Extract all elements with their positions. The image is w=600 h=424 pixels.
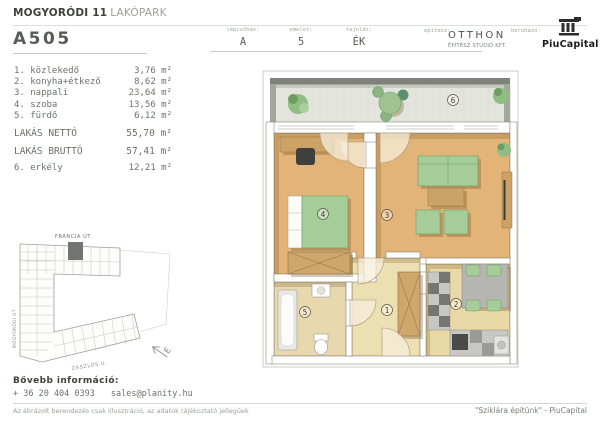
net-area-label: LAKÁS NETTÓ [14, 128, 77, 139]
plant-icon [497, 143, 511, 157]
unit-id-underline [13, 53, 147, 54]
project-title: MOGYORÓDI 11LAKÓPARK [13, 7, 167, 19]
floor-plan: 6 4 3 1 2 5 [258, 68, 522, 370]
net-area-row: LAKÁS NETTÓ55,70 m² [14, 128, 172, 139]
hallway-furniture [398, 272, 420, 336]
toilet [314, 334, 328, 355]
room-row: 4. szoba13,56 m² [14, 100, 172, 111]
meta-orientation-value: ÉK [330, 36, 388, 48]
slogan-text: "Sziklára építünk" - PiuCapital [475, 406, 587, 415]
coffee-table [428, 188, 464, 206]
room-area: 23,64 m² [129, 88, 172, 99]
room-area: 3,76 m² [134, 66, 172, 77]
architect-name: OTTHON [448, 30, 506, 41]
plant-icon [493, 88, 509, 104]
svg-text:2: 2 [454, 300, 459, 309]
developer-name: PiuCapital [542, 39, 599, 50]
svg-text:5: 5 [303, 308, 308, 317]
north-arrow-icon: É [150, 340, 172, 361]
balcony-label: 6. erkély [14, 163, 63, 174]
meta-orientation-label: tájolás: [330, 27, 388, 33]
room-label-4: 4 [318, 209, 329, 220]
project-name-bold: MOGYORÓDI 11 [13, 7, 107, 19]
svg-text:4: 4 [321, 210, 326, 219]
piucapital-logo-icon [557, 17, 583, 37]
gross-area-value: 57,41 m² [126, 146, 172, 157]
room-area: 13,56 m² [129, 100, 172, 111]
room-row: 3. nappali23,64 m² [14, 88, 172, 99]
room-row: 5. fürdő6,12 m² [14, 111, 172, 122]
meta-floor-value: 5 [272, 36, 330, 48]
meta-floor-label: emelet: [272, 27, 330, 33]
gross-area-row: LAKÁS BRUTTÓ57,41 m² [14, 146, 172, 157]
apartment-datasheet: MOGYORÓDI 11LAKÓPARK A505 lépcsőház: A e… [0, 0, 600, 424]
room-label-3: 3 [382, 210, 393, 221]
room-label: 2. konyha+étkező [14, 77, 101, 88]
desk-chair [296, 148, 315, 165]
architect-subtitle: ÉPÍTÉSZ STÚDIÓ KFT. [448, 43, 507, 49]
room-area: 6,12 m² [134, 111, 172, 122]
net-area-value: 55,70 m² [126, 128, 172, 139]
bed-pillows [288, 196, 302, 248]
email-address: sales@planity.hu [111, 389, 193, 399]
meta-orientation: tájolás: ÉK [330, 27, 388, 48]
disclaimer-text: Az ábrázolt berendezés csak illusztráció… [13, 407, 249, 415]
more-info-title: Bővebb információ: [13, 376, 119, 386]
highlighted-unit [68, 242, 83, 260]
stove [452, 334, 468, 350]
room-list: 1. közlekedő3,76 m² 2. konyha+étkező8,62… [14, 66, 172, 122]
svg-text:6: 6 [451, 96, 456, 105]
room-label: 4. szoba [14, 100, 57, 111]
gross-area-label: LAKÁS BRUTTÓ [14, 146, 83, 157]
room-label: 1. közlekedő [14, 66, 79, 77]
footer-divider [13, 403, 587, 404]
bed [302, 196, 348, 248]
contact-line: + 36 20 404 0393sales@planity.hu [13, 389, 193, 399]
street-bottom-label: ZÁSZLÓS U. [71, 359, 108, 372]
room-row: 1. közlekedő3,76 m² [14, 66, 172, 77]
armchair [416, 210, 440, 234]
street-top-label: FRANCIA ÚT [55, 233, 91, 240]
phone-number: + 36 20 404 0393 [13, 389, 95, 399]
room-label: 5. fürdő [14, 111, 57, 122]
meta-staircase: lépcsőház: A [214, 27, 272, 48]
room-label-2: 2 [451, 299, 462, 310]
header-divider [13, 25, 587, 26]
svg-text:3: 3 [385, 211, 390, 220]
svg-text:1: 1 [385, 306, 390, 315]
balcony-area-value: 12,21 m² [129, 163, 172, 174]
meta-staircase-label: lépcsőház: [214, 27, 272, 33]
architect-label: építész: [424, 28, 451, 34]
balcony-area-row: 6. erkély12,21 m² [14, 163, 172, 174]
site-plan: FRANCIA ÚT MOGYORÓDI ÚT ZÁSZLÓS U. É [8, 228, 198, 376]
street-left-label: MOGYORÓDI ÚT [11, 309, 18, 348]
building-outline [20, 242, 140, 362]
room-label-6: 6 [448, 95, 459, 106]
balcony-railing [270, 78, 510, 85]
meta-staircase-value: A [214, 36, 272, 48]
developer-label: beruházó: [511, 28, 541, 34]
room-label-5: 5 [300, 307, 311, 318]
room-row: 2. konyha+étkező8,62 m² [14, 77, 172, 88]
tv [504, 180, 506, 220]
room-label: 3. nappali [14, 88, 68, 99]
room-area: 8,62 m² [134, 77, 172, 88]
room-label-1: 1 [382, 305, 393, 316]
meta-underline [210, 51, 482, 52]
unit-id: A505 [13, 29, 72, 49]
armchair [444, 210, 468, 234]
meta-floor: emelet: 5 [272, 27, 330, 48]
project-name-light: LAKÓPARK [110, 7, 166, 19]
